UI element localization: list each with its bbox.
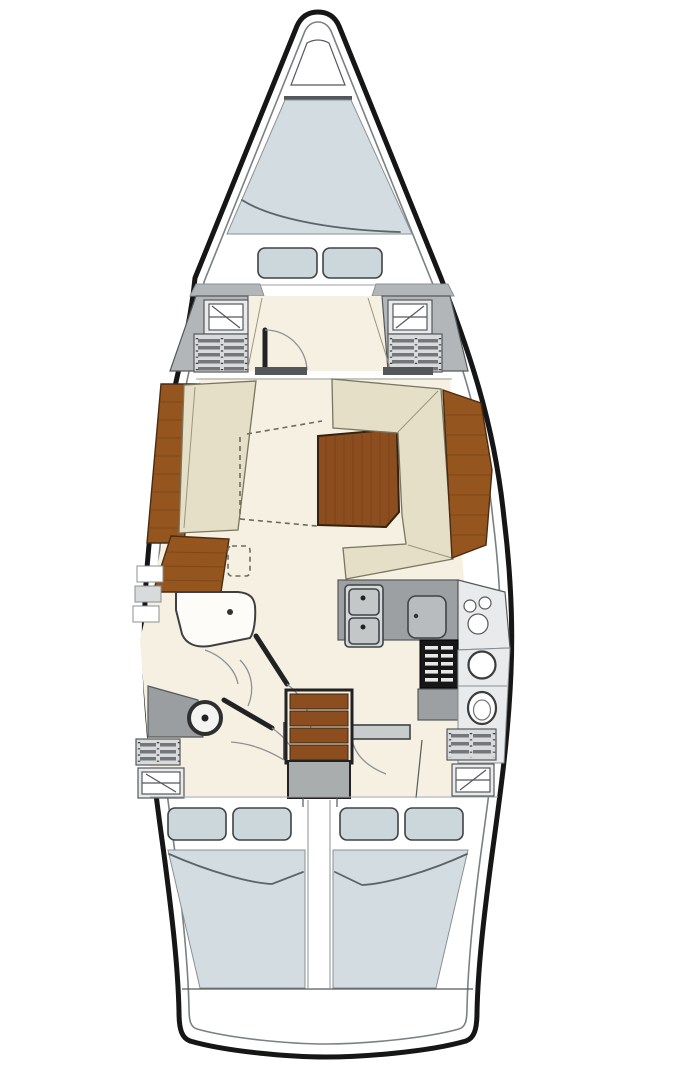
companionway bbox=[286, 690, 352, 807]
companionway-landing bbox=[288, 761, 350, 798]
chart-table-dot bbox=[227, 609, 233, 615]
hull-lockers-port bbox=[133, 566, 163, 622]
yacht-floor-plan bbox=[0, 0, 675, 1080]
saloon-table bbox=[318, 429, 399, 527]
sink-basin-fwd bbox=[349, 589, 379, 615]
head-door-slab bbox=[352, 725, 410, 739]
aft-pillow bbox=[233, 808, 291, 840]
saloon-bulkhead-sill bbox=[383, 367, 433, 375]
sink-basin-aft bbox=[349, 618, 379, 644]
chart-table bbox=[176, 592, 255, 647]
v-berth-pillow-left bbox=[258, 248, 317, 278]
fwd-door-sill bbox=[255, 367, 307, 375]
aft-pillow bbox=[340, 808, 398, 840]
v-berth-pillow-right bbox=[323, 248, 382, 278]
fwd-shelf-left bbox=[190, 284, 264, 296]
sink-drain bbox=[361, 596, 366, 601]
stove-burner-large bbox=[468, 614, 488, 634]
washbasin bbox=[469, 652, 496, 679]
nav-stool-center bbox=[202, 715, 209, 722]
stove-burner-small bbox=[464, 600, 476, 612]
floor-plan-canvas bbox=[0, 0, 675, 1080]
aft-pillow bbox=[168, 808, 226, 840]
toilet bbox=[468, 692, 496, 724]
fridge-handle bbox=[414, 614, 418, 618]
stove-burner-small bbox=[479, 597, 491, 609]
oven-base-cabinet bbox=[418, 689, 458, 720]
fwd-floor bbox=[246, 296, 392, 371]
fridge-lid bbox=[408, 596, 446, 638]
sink-drain bbox=[361, 625, 366, 630]
berth-head-edge bbox=[284, 96, 352, 100]
aft-pillow bbox=[405, 808, 463, 840]
forward-cabin bbox=[170, 284, 468, 379]
fwd-shelf-right bbox=[372, 284, 454, 296]
